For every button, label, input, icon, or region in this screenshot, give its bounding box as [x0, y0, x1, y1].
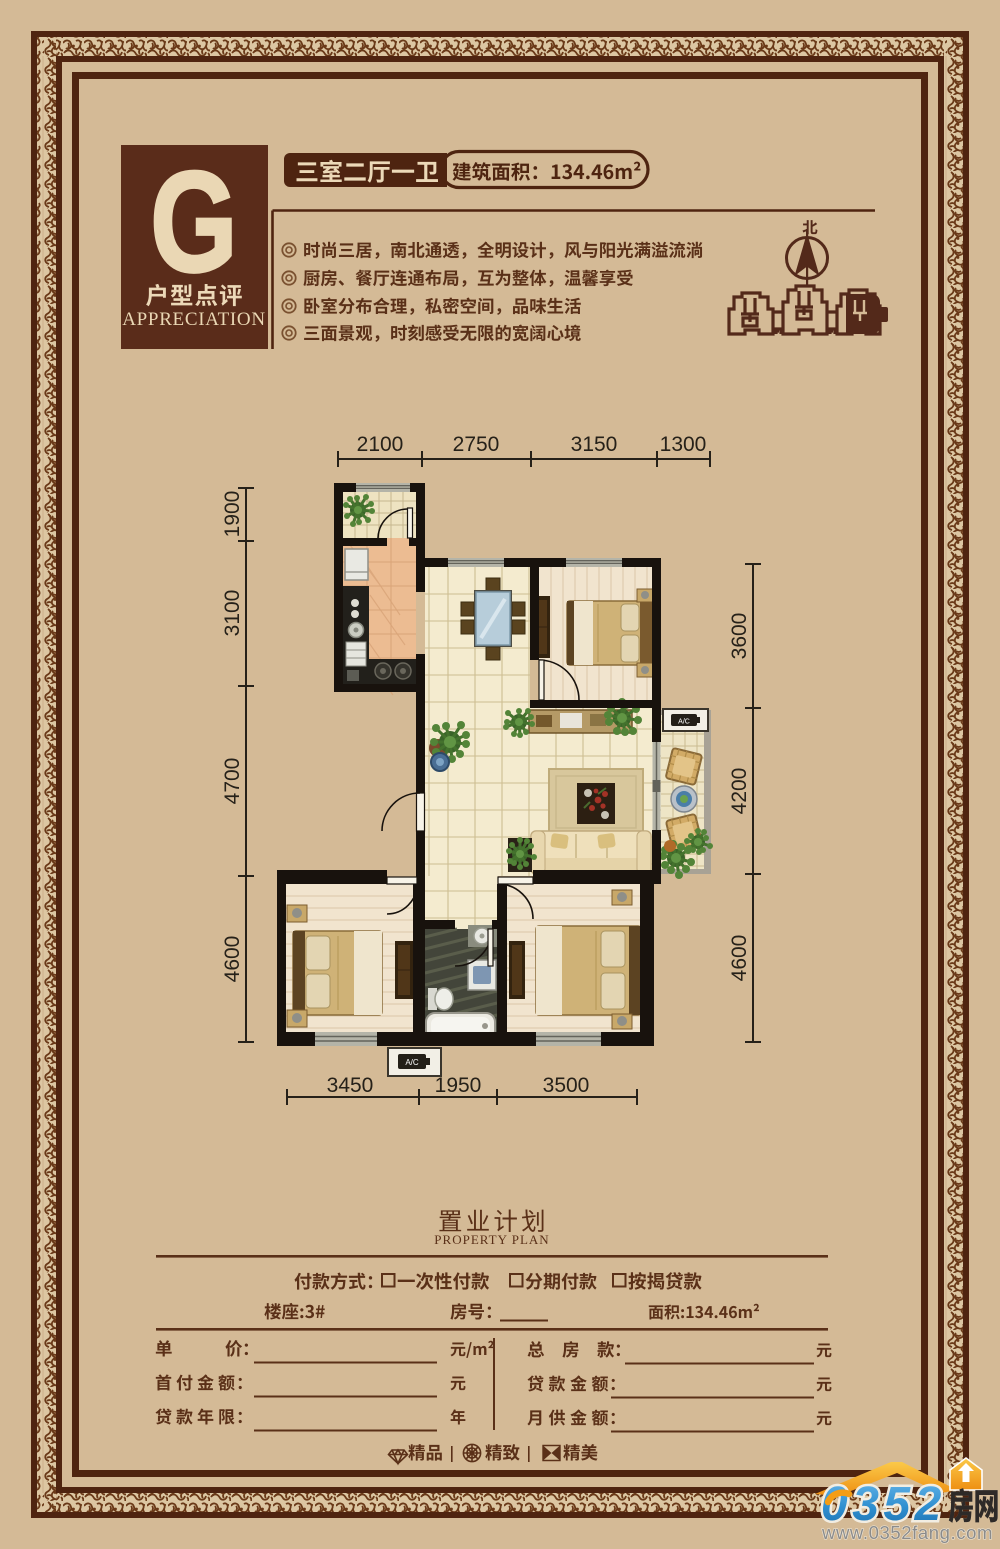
svg-text:3100: 3100 — [221, 590, 244, 637]
svg-text:A/C: A/C — [405, 1058, 419, 1067]
svg-text:3450: 3450 — [327, 1074, 374, 1097]
svg-text:PROPERTY PLAN: PROPERTY PLAN — [434, 1232, 549, 1247]
svg-text:A/C: A/C — [678, 719, 690, 726]
svg-text:www.0352fang.com: www.0352fang.com — [821, 1522, 993, 1543]
svg-text:1300: 1300 — [660, 433, 707, 456]
svg-text:3500: 3500 — [543, 1074, 590, 1097]
svg-text:4700: 4700 — [221, 758, 244, 805]
svg-text:3150: 3150 — [571, 433, 618, 456]
svg-text:1900: 1900 — [221, 491, 244, 538]
svg-text:3600: 3600 — [728, 613, 751, 660]
svg-text:2750: 2750 — [453, 433, 500, 456]
svg-text:2100: 2100 — [357, 433, 404, 456]
svg-text:APPRECIATION: APPRECIATION — [122, 309, 266, 330]
svg-text:4600: 4600 — [728, 935, 751, 982]
svg-text:4600: 4600 — [221, 936, 244, 983]
svg-text:1950: 1950 — [435, 1074, 482, 1097]
svg-text:G: G — [150, 143, 237, 302]
svg-text:4200: 4200 — [728, 768, 751, 815]
